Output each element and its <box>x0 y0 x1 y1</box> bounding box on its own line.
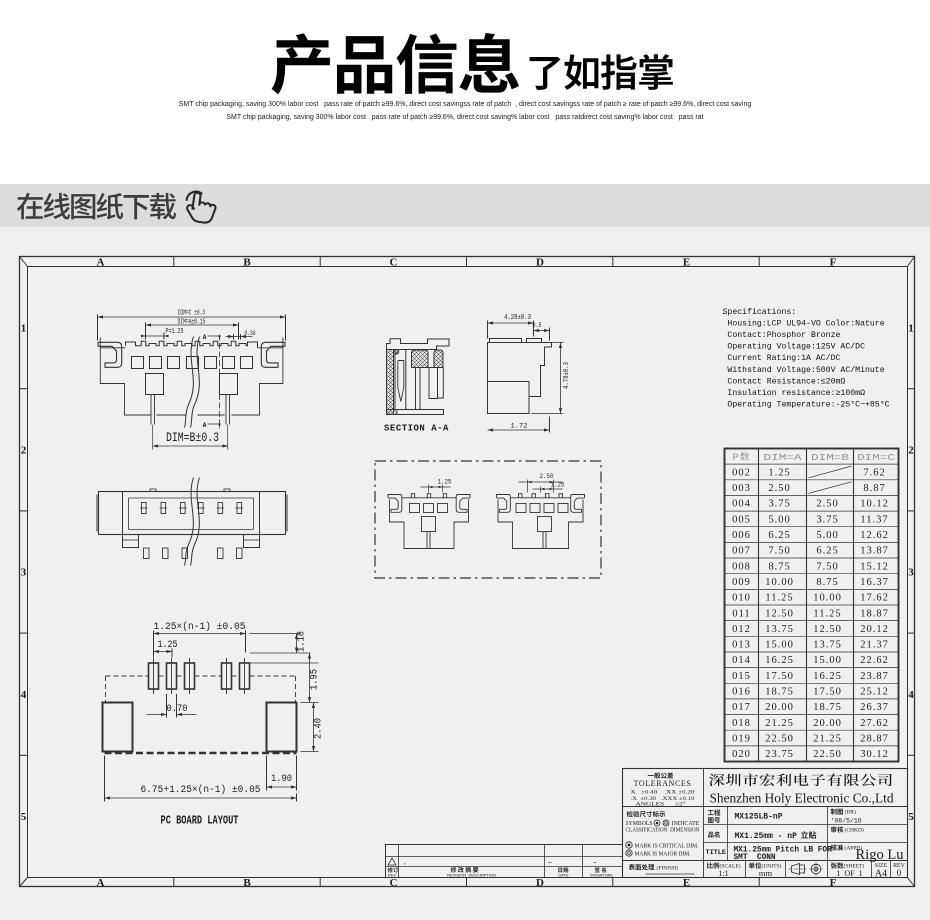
svg-text:27.62: 27.62 <box>860 718 889 729</box>
svg-text:17.50: 17.50 <box>765 671 794 682</box>
svg-text:0.30: 0.30 <box>245 330 256 338</box>
svg-text:2.50: 2.50 <box>540 473 554 480</box>
svg-text:A4: A4 <box>875 869 887 880</box>
svg-text:5: 5 <box>21 811 27 823</box>
svg-text:–: – <box>548 859 553 868</box>
svg-text:Current Rating:1A AC/DC: Current Rating:1A AC/DC <box>723 353 841 363</box>
svg-text:DIM=C ±0.3: DIM=C ±0.3 <box>178 310 205 318</box>
svg-text:MARK IS MAJOR DIM.: MARK IS MAJOR DIM. <box>635 851 691 858</box>
svg-text:REVISION DESCRIPTION: REVISION DESCRIPTION <box>447 873 496 878</box>
svg-text:006: 006 <box>732 530 751 541</box>
svg-text:30.12: 30.12 <box>860 749 889 760</box>
svg-text:009: 009 <box>732 577 751 588</box>
svg-text:23.75: 23.75 <box>765 749 794 760</box>
svg-text:011: 011 <box>732 608 750 619</box>
svg-text:F: F <box>830 257 837 269</box>
svg-text:21.25: 21.25 <box>765 718 794 729</box>
svg-text:7.50: 7.50 <box>816 561 838 572</box>
svg-text:TITLE: TITLE <box>706 849 726 857</box>
svg-text:28.87: 28.87 <box>860 733 889 744</box>
svg-text:12.50: 12.50 <box>813 624 842 635</box>
svg-text:A: A <box>97 257 105 269</box>
svg-text:20.00: 20.00 <box>813 718 842 729</box>
svg-text:21.37: 21.37 <box>860 640 889 651</box>
svg-text:16.37: 16.37 <box>860 577 889 588</box>
svg-text:1:1: 1:1 <box>718 869 728 878</box>
svg-text:6.25: 6.25 <box>816 546 838 557</box>
svg-text:13.87: 13.87 <box>860 546 889 557</box>
svg-text:23.87: 23.87 <box>860 671 889 682</box>
svg-text:.: . <box>403 859 408 868</box>
svg-text:010: 010 <box>732 593 751 604</box>
svg-text:0: 0 <box>897 868 902 878</box>
svg-text:1.18: 1.18 <box>296 631 308 652</box>
svg-text:B: B <box>243 877 251 889</box>
svg-text:Contact Resistance:≤20mΩ: Contact Resistance:≤20mΩ <box>723 376 846 386</box>
svg-text:7.62: 7.62 <box>863 467 885 478</box>
svg-text:DIM=A: DIM=A <box>764 452 802 463</box>
svg-text:2.50: 2.50 <box>768 483 790 494</box>
svg-text:4: 4 <box>21 689 27 701</box>
svg-text:DATE: DATE <box>558 873 569 878</box>
svg-text:SYMBOLS: SYMBOLS <box>626 821 653 827</box>
svg-text:15.12: 15.12 <box>860 561 889 572</box>
svg-text:MX125LB-nP: MX125LB-nP <box>735 813 783 822</box>
svg-text:25.12: 25.12 <box>860 687 889 698</box>
svg-text:F: F <box>830 877 837 889</box>
svg-text:4.28±0.3: 4.28±0.3 <box>504 314 531 322</box>
svg-text:PC BOARD LAYOUT: PC BOARD LAYOUT <box>161 815 239 828</box>
svg-text:12.62: 12.62 <box>860 530 889 541</box>
svg-text:Rigo Lu: Rigo Lu <box>856 847 904 863</box>
svg-text:005: 005 <box>732 514 751 525</box>
svg-text:(CHKD): (CHKD) <box>845 827 864 834</box>
svg-text:12.50: 12.50 <box>765 608 794 619</box>
svg-text:10.12: 10.12 <box>860 499 889 510</box>
svg-text:017: 017 <box>732 702 751 713</box>
svg-text:003: 003 <box>732 483 751 494</box>
svg-text:11.37: 11.37 <box>860 514 888 525</box>
svg-text:A: A <box>97 877 105 889</box>
svg-text:18.75: 18.75 <box>765 687 794 698</box>
svg-text:1: 1 <box>908 323 914 335</box>
svg-text:Operating Voltage:125V AC/DC: Operating Voltage:125V AC/DC <box>723 342 866 352</box>
svg-text:DIM=B: DIM=B <box>811 452 849 463</box>
svg-text:014: 014 <box>732 655 751 666</box>
svg-text:D: D <box>536 877 544 889</box>
svg-text:2: 2 <box>908 445 914 457</box>
svg-text:SIGNATURE: SIGNATURE <box>590 873 613 878</box>
svg-text:4: 4 <box>908 689 914 701</box>
svg-text:Insulation resistance:≥100mΩ: Insulation resistance:≥100mΩ <box>723 388 866 398</box>
svg-text:0.5: 0.5 <box>533 322 542 330</box>
svg-text:3.75: 3.75 <box>768 499 790 510</box>
svg-text:17.50: 17.50 <box>813 687 842 698</box>
svg-text:7.50: 7.50 <box>768 546 790 557</box>
svg-text:13.75: 13.75 <box>813 640 842 651</box>
svg-text:22.50: 22.50 <box>813 749 842 760</box>
svg-text:17.62: 17.62 <box>860 593 889 604</box>
svg-text:20.12: 20.12 <box>860 624 889 635</box>
svg-text:1.25: 1.25 <box>768 467 790 478</box>
svg-text:1.90: 1.90 <box>271 773 292 785</box>
svg-text:DIM=B±0.3: DIM=B±0.3 <box>166 430 219 445</box>
svg-text:DIM=A±0.15: DIM=A±0.15 <box>178 319 206 327</box>
svg-text:1: 1 <box>21 323 27 335</box>
svg-text:P=1.25: P=1.25 <box>166 328 184 336</box>
svg-text:8.87: 8.87 <box>863 483 885 494</box>
svg-text:1.25: 1.25 <box>551 482 565 489</box>
svg-text:1.25: 1.25 <box>158 639 178 651</box>
svg-text:Withstand Voltage:500V AC/Minu: Withstand Voltage:500V AC/Minute <box>723 365 885 375</box>
svg-text:ANGLES ±2°: ANGLES ±2° <box>636 801 686 808</box>
svg-text:20.00: 20.00 <box>765 702 794 713</box>
svg-text:5.00: 5.00 <box>768 514 790 525</box>
svg-text:10.00: 10.00 <box>765 577 794 588</box>
svg-text:013: 013 <box>732 640 751 651</box>
svg-text:012: 012 <box>732 624 751 635</box>
svg-text:008: 008 <box>732 561 751 572</box>
svg-text:007: 007 <box>732 546 751 557</box>
svg-text:(DR): (DR) <box>845 809 856 816</box>
svg-text:A: A <box>203 422 207 429</box>
svg-text:019: 019 <box>732 733 751 744</box>
svg-text:2.40: 2.40 <box>313 718 325 739</box>
svg-text:8.75: 8.75 <box>768 561 790 572</box>
svg-text:(FINISH): (FINISH) <box>657 865 679 872</box>
svg-text:E: E <box>683 257 690 269</box>
svg-text:-: - <box>593 859 598 868</box>
svg-text:Contact:Phosphor Bronze: Contact:Phosphor Bronze <box>723 330 841 340</box>
svg-text:22.62: 22.62 <box>860 655 889 666</box>
svg-text:13.75: 13.75 <box>765 624 794 635</box>
svg-text:1.25: 1.25 <box>438 479 452 486</box>
svg-text:11.25: 11.25 <box>813 608 841 619</box>
svg-text:A: A <box>203 334 207 341</box>
svg-text:3: 3 <box>21 567 27 579</box>
svg-text:REV: REV <box>388 873 397 878</box>
svg-text:1 OF 1: 1 OF 1 <box>836 869 862 878</box>
svg-text:C: C <box>390 877 398 889</box>
svg-text:1.95: 1.95 <box>309 669 321 690</box>
svg-text:TOLERANCES: TOLERANCES <box>634 779 692 788</box>
svg-text:1.72: 1.72 <box>511 423 528 431</box>
svg-text:DIM=C: DIM=C <box>857 452 895 463</box>
svg-text:16.25: 16.25 <box>765 655 794 666</box>
svg-text:15.00: 15.00 <box>765 640 794 651</box>
svg-text:Shenzhen Holy Electronic Co.,L: Shenzhen Holy Electronic Co.,Ltd <box>710 791 894 806</box>
svg-text:6.75+1.25×(n-1) ±0.05: 6.75+1.25×(n-1) ±0.05 <box>141 784 261 796</box>
svg-text:020: 020 <box>732 749 751 760</box>
svg-text:C: C <box>390 257 398 269</box>
svg-text:SECTION A-A: SECTION A-A <box>384 424 449 434</box>
svg-text:018: 018 <box>732 718 751 729</box>
svg-text:CLASSIFICATION DIMENSION: CLASSIFICATION DIMENSION <box>626 828 701 834</box>
svg-text:'08/5/16: '08/5/16 <box>831 818 862 825</box>
svg-text:E: E <box>683 877 690 889</box>
svg-text:18.75: 18.75 <box>813 702 842 713</box>
svg-text:2.50: 2.50 <box>816 499 838 510</box>
svg-text:10.00: 10.00 <box>813 593 842 604</box>
svg-text:26.37: 26.37 <box>860 702 889 713</box>
svg-text:21.25: 21.25 <box>813 733 842 744</box>
svg-text:016: 016 <box>732 687 751 698</box>
svg-text:4.78±0.3: 4.78±0.3 <box>563 362 571 389</box>
svg-text:D: D <box>536 257 544 269</box>
svg-text:B: B <box>243 257 251 269</box>
svg-text:5.00: 5.00 <box>816 530 838 541</box>
svg-text:22.50: 22.50 <box>765 733 794 744</box>
svg-text:6.25: 6.25 <box>768 530 790 541</box>
svg-text:2: 2 <box>21 445 27 457</box>
svg-text:3: 3 <box>908 567 914 579</box>
svg-text:8.75: 8.75 <box>816 577 838 588</box>
svg-text:5: 5 <box>908 811 914 823</box>
svg-text:MX1.25mm - nP: MX1.25mm - nP <box>735 832 798 841</box>
svg-text:X. ±0.40 .XX ±0.20: X. ±0.40 .XX ±0.20 <box>631 790 695 796</box>
svg-text:P: P <box>732 453 738 464</box>
svg-text:MARK IS CRITICAL DIM.: MARK IS CRITICAL DIM. <box>635 843 699 850</box>
svg-text:Operating Temperature:-25°C~+8: Operating Temperature:-25°C~+85°C <box>723 399 890 409</box>
svg-text:11.25: 11.25 <box>765 593 793 604</box>
svg-text:Housing:LCP UL94-VO Color:Natu: Housing:LCP UL94-VO Color:Nature <box>723 319 885 329</box>
svg-text:015: 015 <box>732 671 751 682</box>
svg-text:002: 002 <box>732 467 751 478</box>
svg-text:16.25: 16.25 <box>813 671 842 682</box>
svg-text:15.00: 15.00 <box>813 655 842 666</box>
svg-text:1.25×(n-1) ±0.05: 1.25×(n-1) ±0.05 <box>154 621 246 633</box>
svg-text:3.75: 3.75 <box>816 514 838 525</box>
svg-text:mm: mm <box>759 868 773 878</box>
svg-text:SMT CONN: SMT CONN <box>734 854 776 862</box>
svg-text:004: 004 <box>732 499 751 510</box>
svg-text:Specifications:: Specifications: <box>723 307 797 317</box>
svg-text:INDICATE: INDICATE <box>672 821 700 827</box>
svg-text:18.87: 18.87 <box>860 608 889 619</box>
